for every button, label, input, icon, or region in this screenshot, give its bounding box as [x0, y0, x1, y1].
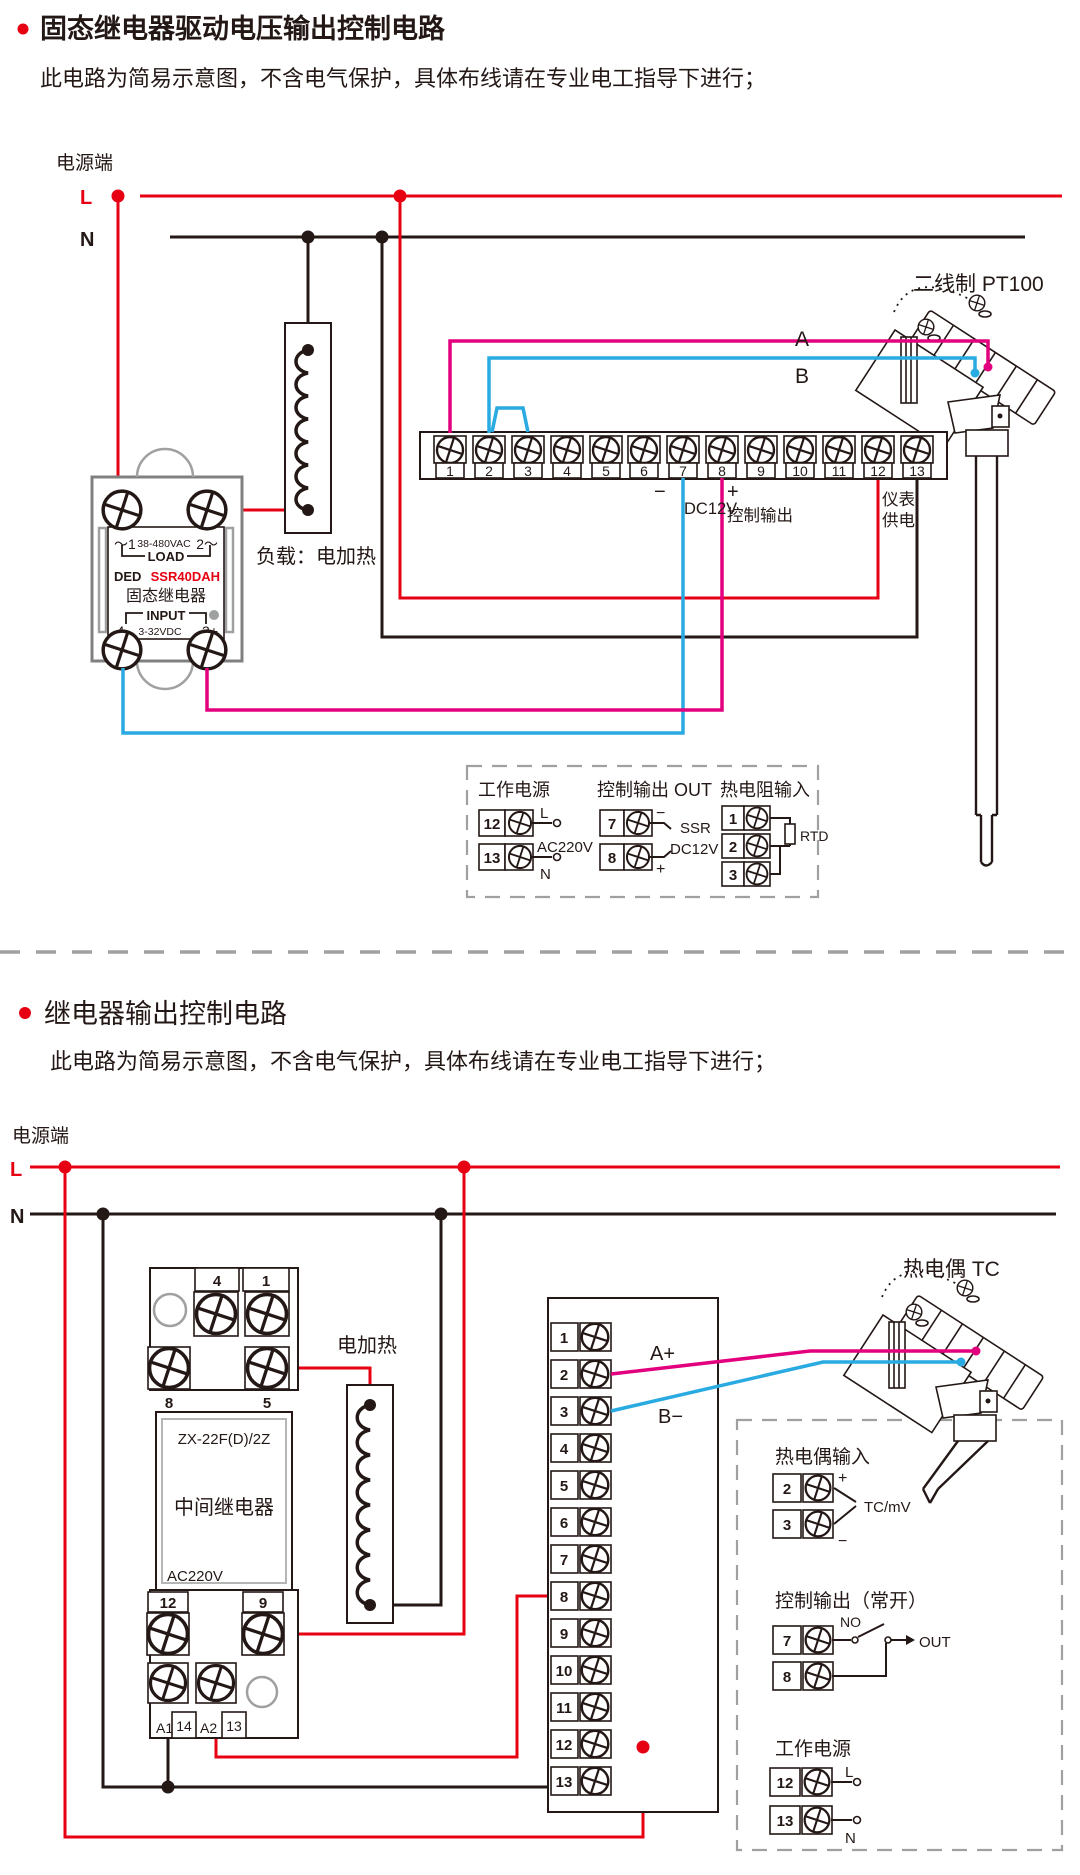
ssr-led-icon — [209, 610, 219, 620]
terminal-number: 9 — [560, 1626, 568, 1643]
legend2-power-title: 工作电源 — [775, 1738, 851, 1760]
relay-terminal: 12 — [160, 1595, 177, 1612]
load-label: 负载：电加热 — [256, 545, 376, 568]
terminal-number: 2 — [485, 463, 493, 479]
pt100-sensor — [856, 287, 1056, 865]
section2-header: 继电器输出控制电路 此电路为简易示意图，不含电气保护，具体布线请在专业电工指导下… — [19, 999, 776, 1074]
terminal-number: 2 — [560, 1367, 568, 1384]
legend-rtd-label: RTD — [800, 828, 829, 844]
tc-sensor — [844, 1272, 1044, 1503]
pt100-label: 二线制 PT100 — [913, 273, 1044, 296]
relay-terminal: 4 — [213, 1273, 222, 1290]
legend-n-label: N — [540, 866, 551, 883]
terminal-number: 5 — [602, 463, 610, 479]
relay-terminal: 13 — [226, 1718, 242, 1734]
wire-b-label: B — [795, 365, 809, 388]
bullet-icon — [18, 24, 29, 35]
terminal-strip-1: 1 2 3 4 5 6 7 8 9 10 11 12 13 — [420, 432, 947, 479]
control-output-label: 控制输出 — [727, 506, 793, 525]
legend-l-label: L — [540, 805, 548, 822]
legend-terminal: 8 — [608, 850, 616, 867]
terminal-number: 1 — [446, 463, 454, 479]
meter-supply-label-2: 供电 — [882, 511, 915, 530]
relay-coil-a1: A1 — [156, 1720, 173, 1736]
relay-block: 4 1 8 5 ZX-22F(D)/2Z 中间继电器 AC220V 12 9 A… — [145, 1268, 298, 1738]
ssr-load-label: LOAD — [148, 549, 185, 564]
section1-signal-wires — [123, 341, 993, 733]
terminal-number: 5 — [560, 1478, 568, 1495]
terminal-number: 13 — [909, 463, 925, 479]
wire-b-minus-label: B− — [658, 1406, 683, 1428]
terminal-number: 10 — [792, 463, 808, 479]
heater-load-1 — [285, 323, 331, 533]
line-l-label: L — [80, 187, 92, 209]
relay-model: ZX-22F(D)/2Z — [178, 1431, 271, 1448]
section2-title: 继电器输出控制电路 — [44, 999, 287, 1029]
wiring-diagram-canvas: 固态继电器驱动电压输出控制电路 此电路为简易示意图，不含电气保护，具体布线请在专… — [0, 0, 1080, 1875]
legend-terminal: 7 — [783, 1633, 791, 1650]
legend-tc-plus: + — [838, 1470, 847, 1487]
ssr-pin1: ～1 — [114, 536, 136, 552]
legend-terminal: 7 — [608, 816, 616, 833]
dc-minus-label: − — [654, 481, 666, 503]
relay-voltage: AC220V — [167, 1568, 223, 1585]
manual-page: 固态继电器驱动电压输出控制电路 此电路为简易示意图，不含电气保护，具体布线请在专… — [0, 0, 1080, 1875]
terminal-number: 11 — [556, 1700, 572, 1717]
legend-l-label: L — [845, 1764, 853, 1781]
legend-terminal: 2 — [783, 1481, 791, 1498]
legend-1: 工作电源 12 L AC220V 13 N 控制输出 OUT 7 − SSR D… — [467, 766, 829, 897]
relay-terminal: 5 — [263, 1395, 271, 1412]
heater-label: 电加热 — [337, 1334, 397, 1357]
terminal-number: 8 — [718, 463, 726, 479]
relay-coil-a2: A2 — [200, 1720, 217, 1736]
legend2-out-title: 控制输出（常开） — [775, 1590, 927, 1612]
meter-supply-label-1: 仪表 — [882, 490, 915, 509]
legend-tcmv-label: TC/mV — [864, 1499, 911, 1516]
legend-tc-minus: − — [838, 1533, 847, 1550]
legend-no-label: NO — [840, 1614, 861, 1630]
bullet-icon — [19, 1007, 31, 1019]
relay-terminal: 14 — [176, 1718, 192, 1734]
terminal-number: 12 — [870, 463, 886, 479]
legend-minus: − — [656, 805, 665, 822]
section1-title: 固态继电器驱动电压输出控制电路 — [40, 13, 446, 44]
terminal-number: 8 — [560, 1589, 568, 1606]
terminal-number: 6 — [560, 1515, 568, 1532]
legend-plus: + — [656, 861, 665, 878]
relay-name: 中间继电器 — [174, 1496, 274, 1519]
ssr-input-label: INPUT — [147, 608, 186, 623]
legend-terminal: 13 — [484, 850, 501, 867]
legend1-power-title: 工作电源 — [478, 780, 550, 800]
legend-ac220v-label: AC220V — [537, 839, 593, 856]
wire-a-plus-label: A+ — [650, 1343, 675, 1365]
ssr-name: 固态继电器 — [126, 587, 206, 605]
ssr-block: ～1 38-480VAC 2～ LOAD DED SSR40DAH 固态继电器 … — [92, 449, 242, 689]
line-n-label: N — [10, 1206, 24, 1228]
terminal-number: 1 — [560, 1330, 568, 1347]
wire-a-label: A — [795, 328, 809, 351]
dc-plus-label: + — [727, 481, 739, 503]
terminal-number: 7 — [560, 1552, 568, 1569]
ssr-model: SSR40DAH — [151, 569, 220, 584]
relay-terminal: 8 — [165, 1395, 173, 1412]
terminal-number: 3 — [524, 463, 532, 479]
section1-subtitle: 此电路为简易示意图，不含电气保护，具体布线请在专业电工指导下进行； — [40, 66, 766, 91]
legend-terminal: 1 — [729, 811, 737, 828]
terminal-number: 3 — [560, 1404, 568, 1421]
legend-out-label: OUT — [919, 1634, 951, 1651]
legend-2: 热电偶输入 2 + 3 − TC/mV 控制输出（常开） 7 NO OUT 8 … — [737, 1420, 1062, 1850]
power-terminal-label: 电源端 — [56, 152, 113, 174]
terminal-number: 11 — [832, 463, 847, 479]
legend-terminal: 12 — [484, 816, 501, 833]
ssr-pin2: 2～ — [196, 536, 218, 552]
legend-terminal: 8 — [783, 1669, 791, 1686]
legend-dc12v-label: DC12V — [670, 841, 718, 858]
relay-terminal: 9 — [259, 1595, 267, 1612]
legend1-out-title: 控制输出 OUT — [597, 780, 712, 800]
ssr-brand: DED — [114, 569, 141, 584]
section1-header: 固态继电器驱动电压输出控制电路 此电路为简易示意图，不含电气保护，具体布线请在专… — [18, 13, 767, 91]
legend-terminal: 3 — [783, 1517, 791, 1534]
terminal-number: 6 — [640, 463, 648, 479]
line-l-label: L — [10, 1159, 22, 1181]
line-n-label: N — [80, 229, 94, 251]
terminal-number: 4 — [563, 463, 571, 479]
terminal-number: 7 — [679, 463, 687, 479]
legend-terminal: 13 — [777, 1813, 794, 1830]
ssr-vdc: 3-32VDC — [138, 626, 182, 638]
power-terminal-label: 电源端 — [12, 1125, 69, 1147]
heater-load-2 — [347, 1385, 393, 1623]
section2-subtitle: 此电路为简易示意图，不含电气保护，具体布线请在专业电工指导下进行； — [50, 1049, 776, 1074]
legend2-tc-title: 热电偶输入 — [775, 1446, 870, 1468]
terminal-number: 4 — [560, 1441, 569, 1458]
tc-label: 热电偶 TC — [903, 1258, 1000, 1281]
terminal-strip-2: 1 2 3 4 5 6 7 8 9 10 11 12 13 — [548, 1298, 718, 1812]
legend-n-label: N — [845, 1830, 856, 1847]
legend-terminal: 2 — [729, 839, 737, 856]
legend-ssr-label: SSR — [680, 820, 711, 837]
terminal-number: 12 — [556, 1737, 573, 1754]
legend-terminal: 3 — [729, 867, 737, 884]
terminal-number: 9 — [757, 463, 765, 479]
legend1-rtd-title: 热电阻输入 — [720, 780, 810, 800]
relay-terminal: 1 — [262, 1273, 270, 1290]
terminal-number: 13 — [556, 1774, 573, 1791]
terminal-number: 10 — [556, 1663, 573, 1680]
legend-terminal: 12 — [777, 1775, 794, 1792]
